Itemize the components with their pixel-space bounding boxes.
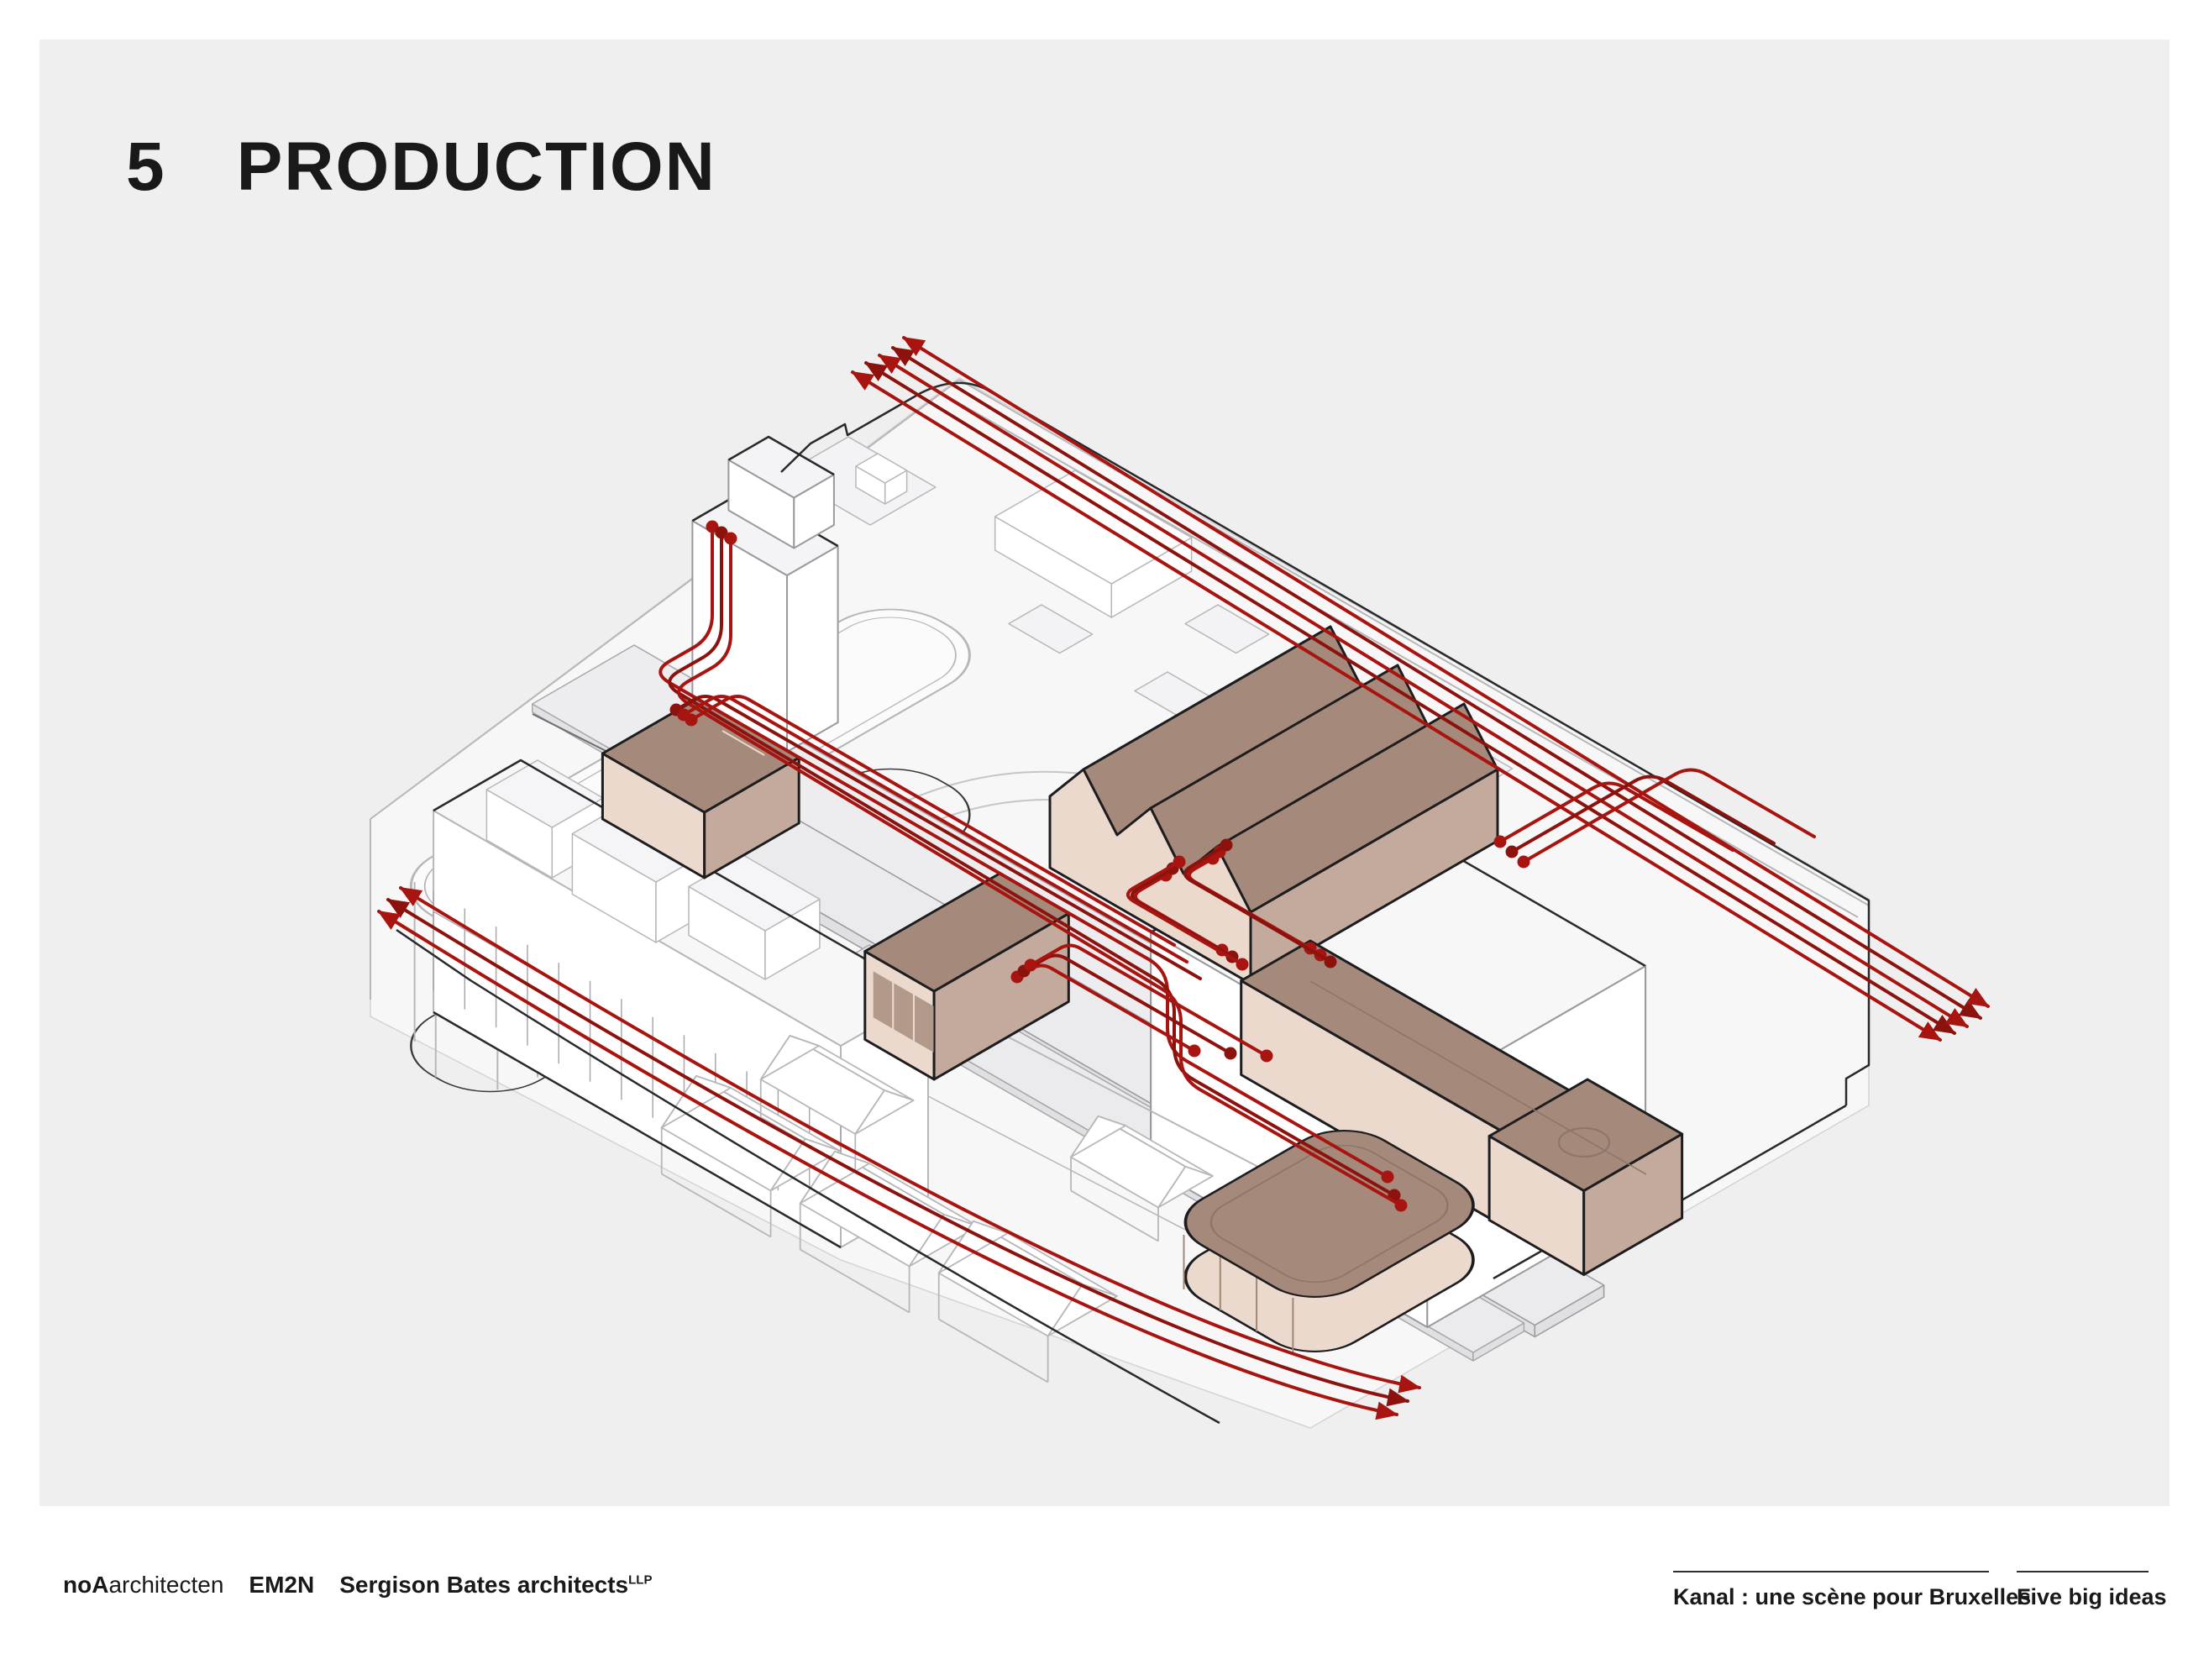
page-title: 5PRODUCTION <box>126 128 716 207</box>
flow-origin-point <box>1236 958 1249 971</box>
flow-origin-point <box>1261 1050 1273 1063</box>
series-title-footer: Five big ideas <box>2017 1571 2149 1610</box>
flow-origin-point <box>1188 1045 1201 1058</box>
flow-origin-point <box>1506 846 1519 858</box>
flow-origin-point <box>1494 836 1507 848</box>
flow-origin-point <box>1518 856 1530 869</box>
presentation-sheet: 5PRODUCTION noAarchitectenEM2NSergison B… <box>0 0 2209 1680</box>
credit-sergison-bates: Sergison Bates architects <box>339 1572 628 1598</box>
credit-noA-rest: architecten <box>108 1572 223 1598</box>
flow-origin-point <box>1395 1200 1408 1212</box>
project-title-footer: Kanal : une scène pour Bruxelles <box>1673 1571 1989 1610</box>
series-title-label: Five big ideas <box>2017 1584 2167 1609</box>
flow-origin-point <box>725 533 737 545</box>
flow-origin-point <box>1025 959 1037 972</box>
credits-footer: noAarchitectenEM2NSergison Bates archite… <box>63 1572 652 1599</box>
flow-origin-point <box>1173 856 1186 869</box>
production-flow-axonometric-diagram <box>0 0 2209 1680</box>
chapter-number: 5 <box>126 128 165 207</box>
flow-origin-point <box>685 714 698 727</box>
flow-origin-point <box>1225 1047 1237 1060</box>
project-title-label: Kanal : une scène pour Bruxelles <box>1673 1584 2031 1609</box>
credit-em2n: EM2N <box>249 1572 314 1598</box>
flow-origin-point <box>1382 1171 1394 1184</box>
credit-llp-superscript: LLP <box>628 1573 652 1588</box>
flow-origin-point <box>1325 956 1337 969</box>
credit-noA-bold: noA <box>63 1572 108 1598</box>
flow-origin-point <box>1220 839 1233 852</box>
chapter-title: PRODUCTION <box>237 128 716 207</box>
stage-tower <box>787 546 838 752</box>
